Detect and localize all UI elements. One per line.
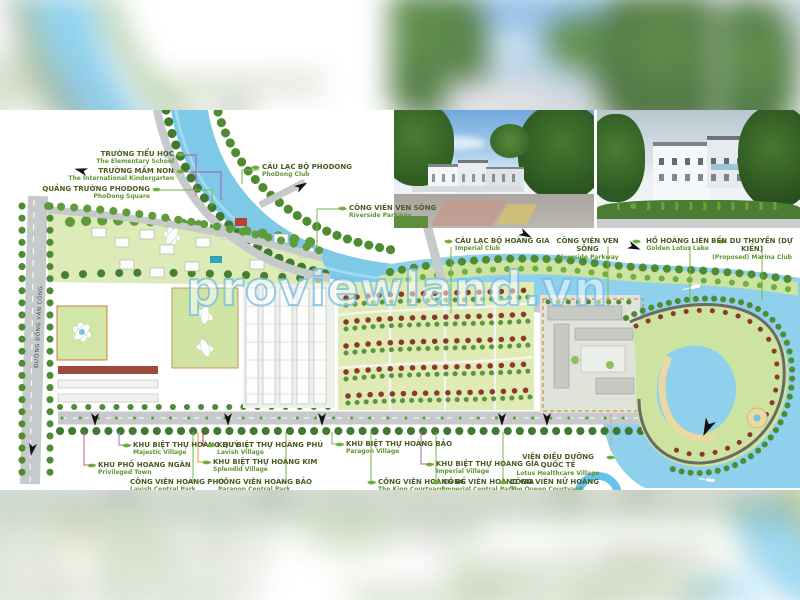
shrubs	[597, 200, 800, 220]
tree-left	[390, 0, 487, 115]
label-vn: TRƯỜNG TIỂU HỌC	[84, 150, 174, 158]
label-vn: QUẢNG TRƯỜNG PHODONG	[40, 185, 150, 193]
map-label-privileged-town: KHU PHỐ HOÀNG NGÂN Privileged Town	[98, 461, 213, 476]
map-label-healthcare-village: VIỆN ĐIỀU DƯỠNG QUỐC TẾ Lotus Healthcare…	[512, 453, 604, 477]
map-label-splendid-village: KHU BIỆT THỰ HOÀNG KIM Splendid Village	[213, 458, 328, 473]
label-en: Imperial Village	[458, 573, 644, 584]
leaf-icon	[734, 549, 748, 561]
screenshot: ĐƯỜNG ĐỒNG VĂN CỐNG	[0, 0, 800, 600]
leaf-icon	[295, 528, 309, 540]
label-en: The Queen Courtyard	[510, 486, 615, 490]
label-vn: CÔNG VIÊN VEN SÔNG	[349, 204, 459, 212]
map-label-splendid-village: KHU BIỆT THỰ HOÀNG KIM Splendid Village	[97, 556, 283, 581]
leaf-icon	[86, 529, 100, 541]
label-en: Privileged Town	[0, 574, 97, 585]
map-label-phodong-square: QUẢNG TRƯỜNG PHODONG PhoDong Square	[40, 185, 150, 200]
map-label-elementary-school: TRƯỜNG TIỂU HỌC The Elementary School	[84, 150, 174, 165]
map-label-phodong-club: CÂU LẠC BỘ PHODONG PhoDong Club	[176, 78, 354, 103]
map-label-riverside-parkway-east: CÔNG VIÊN VEN SÔNG Riverside Parkway	[545, 237, 630, 261]
label-en: Privileged Town	[98, 469, 213, 476]
label-en: Lavish Village	[104, 542, 290, 553]
map-label-paragon-village: KHU BIỆT THỰ HOÀNG BẢO Paragon Village	[313, 527, 499, 552]
map-label-imperial-village: KHU BIỆT THỰ HOÀNG GIA Imperial Village	[458, 559, 644, 584]
map-label-elementary-school: TRƯỜNG TIỂU HỌC The Elementary School	[0, 57, 34, 82]
fence	[412, 186, 524, 192]
map-label-king-courtyard: CÔNG VIÊN HOÀNG ĐẾ The King Courtyard	[364, 588, 534, 600]
map-label-queen-courtyard: CÔNG VIÊN NỮ HOÀNG The Queen Courtyard	[578, 588, 748, 600]
tree-left	[597, 114, 645, 202]
map-label-riverside-parkway-west: CÔNG VIÊN VEN SÔNG Riverside Parkway	[349, 204, 459, 219]
map-label-queen-courtyard: CÔNG VIÊN NỮ HOÀNG The Queen Courtyard	[510, 478, 615, 490]
label-vn: CÂU LẠC BỘ PHODONG	[262, 163, 372, 171]
label-en: Riverside Parkway	[545, 254, 630, 261]
map-label-paragon-central-park: CÔNG VIÊN HOÀNG BẢO Paragon Central Park	[105, 588, 283, 600]
watermark: proviewland.vn	[186, 262, 586, 317]
label-en: Golden Lotus Lake	[640, 245, 715, 252]
masterplan-image: ĐƯỜNG ĐỒNG VĂN CỐNG	[0, 110, 800, 490]
label-en: PhoDong Club	[262, 171, 372, 178]
label-vn: CÔNG VIÊN HOÀNG PHÚ	[0, 588, 141, 600]
label-vn: KHU PHỐ HOÀNG NGÂN	[0, 561, 97, 574]
label-vn: VIỆN ĐIỀU DƯỠNG QUỐC TẾ	[512, 453, 604, 470]
label-en: The Elementary School	[0, 70, 34, 81]
map-label-majestic-village: KHU BIỆT THỰ HOÀNG QUÝ Majestic Village	[0, 528, 154, 553]
label-en: Paragon Central Park	[218, 486, 328, 490]
label-vn: KHU BIỆT THỰ HOÀNG GIA	[458, 559, 644, 572]
leaf-icon	[38, 86, 52, 98]
label-vn: CÔNG VIÊN NỮ HOÀNG	[510, 478, 615, 486]
leaf-icon	[561, 589, 575, 600]
label-en: PhoDong Club	[176, 91, 354, 102]
tree-right	[738, 110, 800, 208]
leaf-icon	[347, 589, 361, 600]
leaf-icon	[159, 79, 173, 91]
map-label-kindergarten: TRƯỜNG MẦM NON The International Kinderg…	[64, 167, 174, 182]
label-en: Paragon Village	[346, 448, 461, 455]
label-vn: KHU BIỆT THỰ HOÀNG KIM	[213, 458, 328, 466]
map-label-phodong-club: CÂU LẠC BỘ PHODONG PhoDong Club	[262, 163, 372, 178]
label-en: (Proposed) Marina Club	[706, 254, 798, 261]
clipped-blue-graphic	[688, 585, 753, 600]
label-vn: KHU BIỆT THỰ HOÀNG BẢO	[346, 440, 461, 448]
label-en: Riverside Parkway	[349, 212, 459, 219]
map-label-marina-club: BẾN DU THUYỀN (DỰ KIẾN) (Proposed) Marin…	[706, 237, 798, 261]
label-vn: CÔNG VIÊN HOÀNG BẢO	[218, 478, 328, 486]
label-en: The International Kindergarten	[64, 175, 174, 182]
label-vn: CÔNG VIÊN HOÀNG BẢO	[105, 588, 283, 600]
red-roof-building	[235, 218, 247, 226]
label-vn: HỒ HOÀNG LIÊN	[640, 237, 715, 245]
label-vn: TRƯỜNG MẦM NON	[64, 167, 174, 175]
leaf-icon	[80, 557, 94, 569]
label-en: PhoDong Square	[40, 193, 150, 200]
label-en: Lavish Village	[217, 449, 332, 456]
label-vn: KHU BIỆT THỰ HOÀNG KIM	[97, 556, 283, 569]
map-label-healthcare-village: VIỆN ĐIỀU DƯỠNG QUỐC TẾ Lotus Healthcare…	[581, 548, 730, 586]
photo-villa-exterior	[597, 110, 800, 228]
map-label-golden-lotus-lake: HỒ HOÀNG LIÊN Golden Lotus Lake	[640, 237, 715, 252]
label-vn: KHU BIỆT THỰ HOÀNG PHÚ	[217, 441, 332, 449]
label-vn: KHU PHỐ HOÀNG NGÂN	[98, 461, 213, 469]
map-label-paragon-central-park: CÔNG VIÊN HOÀNG BẢO Paragon Central Park	[218, 478, 328, 490]
label-vn: CÔNG VIÊN HOÀNG GIA	[470, 588, 640, 600]
label-vn: KHU BIỆT THỰ HOÀNG BẢO	[313, 527, 499, 540]
label-vn: TRƯỜNG MẦM NON	[0, 85, 34, 98]
label-en: Lotus Healthcare Village	[512, 470, 604, 477]
label-vn: CÔNG VIÊN NỮ HOÀNG	[578, 588, 748, 600]
label-en: Majestic Village	[0, 542, 154, 553]
tree-right	[518, 110, 594, 200]
map-label-kindergarten: TRƯỜNG MẦM NON The International Kinderg…	[0, 85, 34, 110]
label-vn: VIỆN ĐIỀU DƯỠNG QUỐC TẾ	[581, 548, 730, 575]
map-label-paragon-village: KHU BIỆT THỰ HOÀNG BẢO Paragon Village	[346, 440, 461, 455]
label-vn: KHU BIỆT THỰ HOÀNG PHÚ	[104, 528, 290, 541]
leaf-icon	[452, 589, 466, 600]
label-vn: KHU BIỆT THỰ HOÀNG QUÝ	[0, 528, 154, 541]
map-label-privileged-town: KHU PHỐ HOÀNG NGÂN Privileged Town	[0, 561, 97, 586]
leaf-icon	[441, 560, 455, 572]
label-vn: TRƯỜNG TIỂU HỌC	[0, 57, 34, 70]
label-vn: CÔNG VIÊN VEN SÔNG	[545, 237, 630, 254]
label-vn: BẾN DU THUYỀN (DỰ KIẾN)	[706, 237, 798, 254]
label-en: Splendid Village	[213, 466, 328, 473]
label-en: Lotus Healthcare Village	[581, 575, 730, 586]
leaf-icon	[38, 58, 52, 70]
label-en: Splendid Village	[97, 569, 283, 580]
label-en: The International Kindergarten	[0, 98, 34, 109]
map-label-imperial-central-park: CÔNG VIÊN HOÀNG GIA Imperial Central Par…	[470, 588, 640, 600]
map-label-lavish-village: KHU BIỆT THỰ HOÀNG PHÚ Lavish Village	[217, 441, 332, 456]
label-en: The Elementary School	[84, 158, 174, 165]
label-vn: CÂU LẠC BỘ PHODONG	[176, 78, 354, 91]
label-en: Paragon Village	[313, 540, 499, 551]
map-label-lavish-central-park: CÔNG VIÊN HOÀNG PHÚ Lavish Central Park	[0, 588, 141, 600]
label-vn: CÔNG VIÊN HOÀNG ĐẾ	[364, 588, 534, 600]
map-label-lavish-village: KHU BIỆT THỰ HOÀNG PHÚ Lavish Village	[104, 528, 290, 553]
